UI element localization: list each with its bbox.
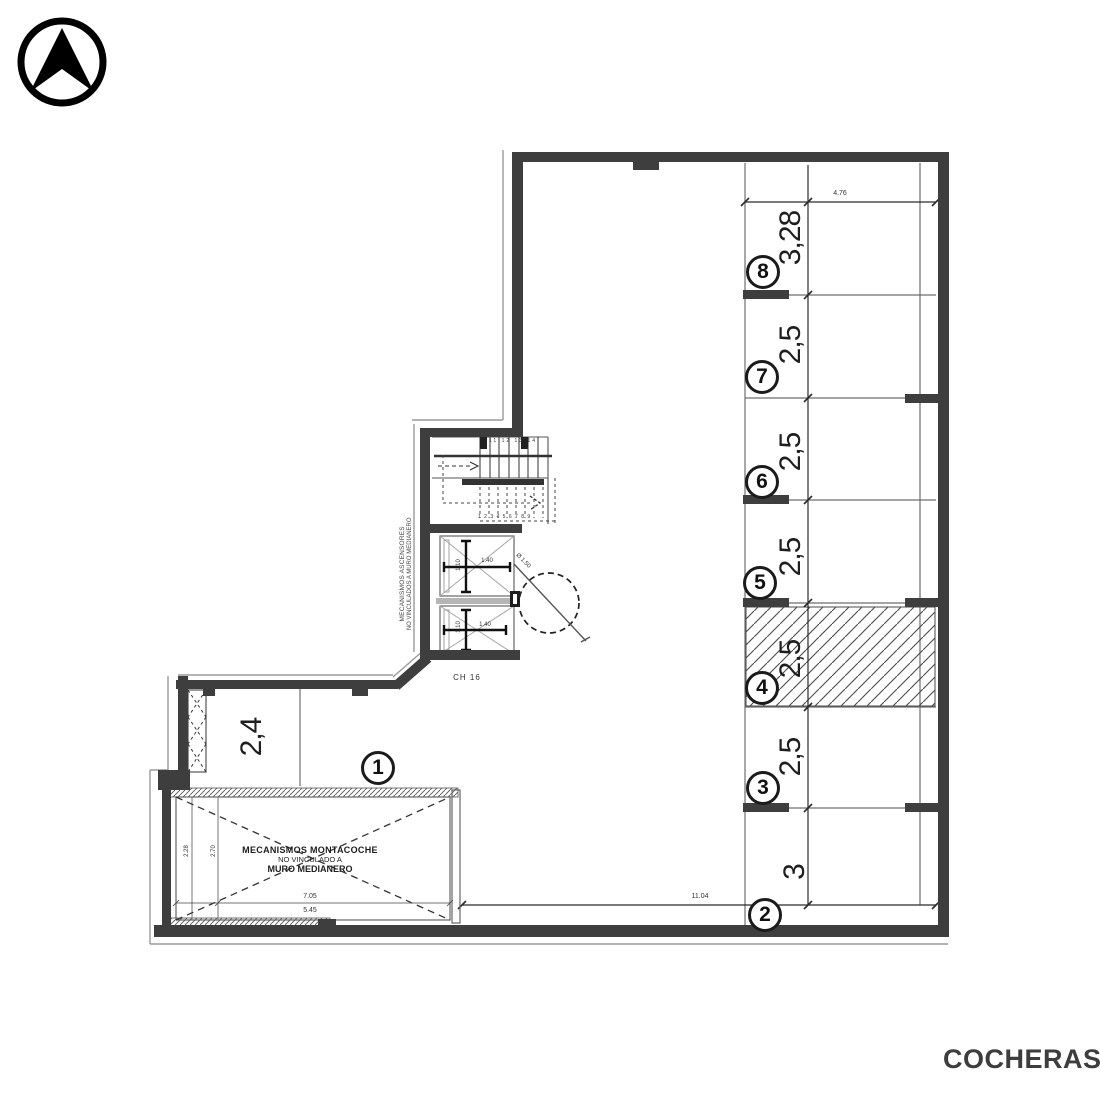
space-number-1-label: 1 (372, 756, 384, 780)
pilaster-space1-b (352, 689, 368, 696)
space-number-2: 2 (748, 898, 782, 932)
staircase (432, 437, 555, 524)
dim-carlift-depth-a: 2.28 (184, 831, 190, 871)
outer-offset-outline (150, 150, 948, 944)
space-number-5-label: 5 (754, 571, 766, 595)
dim-carlift-inner: 5.45 (290, 907, 330, 914)
dim-space-4: 2,5 (775, 619, 807, 699)
wall-bottom (154, 925, 949, 937)
wall-elevator-bottom (420, 650, 520, 660)
page-title: COCHERAS (943, 1044, 1083, 1075)
elevators-note: MECANISMOS ASCENSORES NO VINCULADOS A MU… (399, 488, 415, 660)
dim-space-1: 2,4 (236, 697, 268, 777)
wall-step (420, 428, 523, 437)
space-number-1: 1 (361, 751, 395, 785)
space-number-8: 8 (746, 255, 780, 289)
dim-carlift-width: 7.05 (290, 893, 330, 900)
dim-top-overall: 4.76 (820, 190, 860, 197)
dim-space-2: 3 (779, 832, 811, 912)
stub-right-5 (905, 598, 938, 607)
wall-stair-elevator-divider (420, 524, 522, 533)
space-number-4: 4 (745, 671, 779, 705)
wall-elevator-left (420, 524, 430, 658)
car-lift-label: MECANISMOS MONTACOCHE NO VINCULADO A MUR… (210, 845, 410, 874)
wall-space1-left (178, 676, 188, 776)
elevators-note-line1: MECANISMOS ASCENSORES (399, 488, 407, 660)
space-number-3: 3 (746, 771, 780, 805)
stair-upper-tread-numbers: 11 12 13 14 (489, 438, 537, 444)
pilaster-top (633, 162, 659, 170)
wall-stair-left (420, 428, 430, 533)
diagonal-wall (396, 658, 428, 686)
space-number-8-label: 8 (757, 260, 769, 284)
dim-space-6: 2,5 (775, 412, 807, 492)
wall-left-upper (512, 152, 523, 428)
dim-space-8: 3,28 (775, 198, 807, 278)
dim-elevator-depth-bottom: 1.10 (456, 612, 462, 642)
dim-elevator-width-top: 1.40 (472, 558, 502, 564)
elevators-note-line2: NO VINCULADOS A MURO MEDIANERO (407, 488, 415, 660)
space-number-7: 7 (745, 360, 779, 394)
dim-elevator-depth-top: 1.10 (456, 550, 462, 580)
car-lift-label-line1: MECANISMOS MONTACOCHE (210, 845, 410, 855)
turning-circle (514, 564, 590, 642)
dim-bottom-overall: 11.04 (680, 893, 720, 900)
pilaster-space1-a (203, 689, 215, 696)
stub-right-3 (905, 803, 938, 812)
space-number-7-label: 7 (756, 365, 768, 389)
stub-bottom (318, 919, 336, 926)
space-number-2-label: 2 (759, 903, 771, 927)
space-number-6-label: 6 (756, 470, 768, 494)
north-arrow-icon (14, 14, 110, 110)
wall-corner-block (158, 770, 190, 790)
floorplan-page: { "title": "COCHERAS", "north_arrow": { … (0, 0, 1100, 1100)
wall-carlift-left (162, 788, 171, 928)
dim-space-5: 2,5 (775, 517, 807, 597)
car-lift-label-line3: MURO MEDIANERO (210, 864, 410, 874)
car-lift-label-line2: NO VINCULADO A (210, 855, 410, 864)
elevator-shafts (436, 536, 520, 654)
dim-space-7: 2,5 (775, 305, 807, 385)
dim-elevator-width-bottom: 1.40 (470, 622, 500, 628)
space-number-5: 5 (743, 566, 777, 600)
wall-space1-top (176, 680, 398, 689)
stub-right-7 (905, 394, 938, 403)
dimension-chain (458, 165, 940, 909)
stair-lower-tread-numbers: 1 2 3 4 5 6 7 8 9 (478, 514, 531, 520)
space-number-4-label: 4 (756, 676, 768, 700)
stub-left-5 (743, 598, 789, 607)
space-number-6: 6 (745, 465, 779, 499)
stub-left-8 (743, 290, 789, 299)
space-number-3-label: 3 (757, 776, 769, 800)
wall-top (515, 152, 948, 162)
wall-right (938, 152, 949, 937)
duct-shaft (188, 690, 206, 772)
level-label: CH 16 (440, 673, 494, 682)
